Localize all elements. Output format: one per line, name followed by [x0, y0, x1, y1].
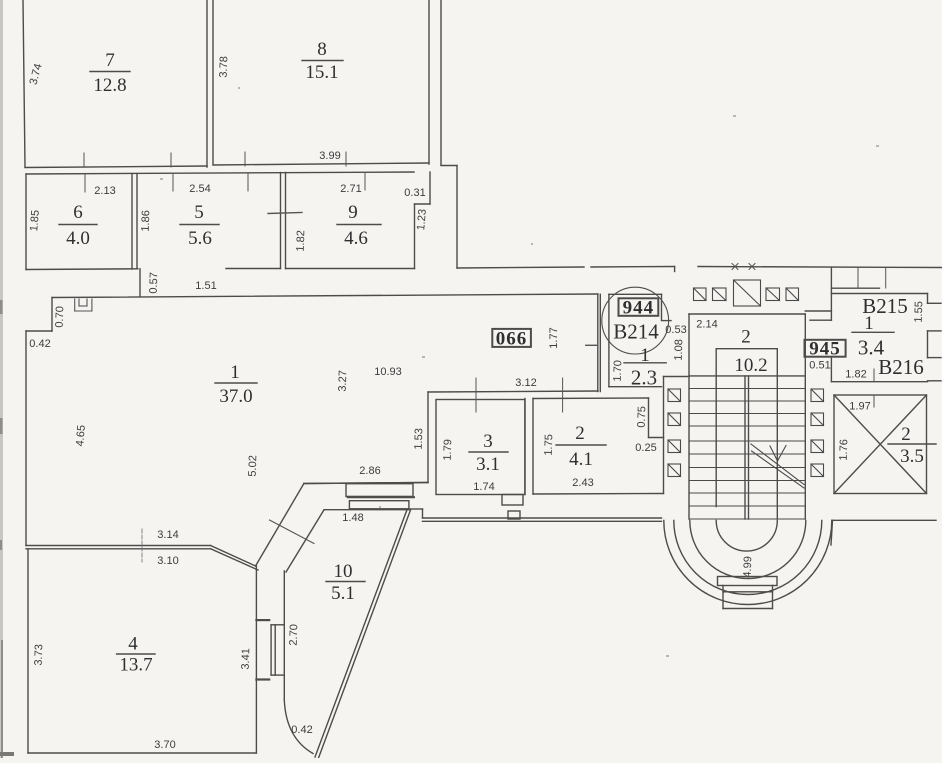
svg-text:1.77: 1.77	[548, 327, 560, 348]
svg-text:0.57: 0.57	[148, 272, 161, 294]
svg-text:12.8: 12.8	[93, 75, 126, 96]
svg-text:0.75: 0.75	[636, 406, 649, 428]
svg-text:3.10: 3.10	[157, 555, 178, 567]
svg-text:3.1: 3.1	[476, 454, 500, 475]
svg-text:0.25: 0.25	[635, 442, 656, 454]
svg-text:4.0: 4.0	[66, 228, 90, 249]
svg-text:1.79: 1.79	[442, 439, 455, 461]
svg-text:9: 9	[348, 202, 358, 223]
svg-text:2.86: 2.86	[359, 465, 380, 477]
svg-text:2: 2	[901, 424, 911, 445]
svg-text:2.3: 2.3	[631, 366, 657, 390]
svg-text:4: 4	[128, 634, 138, 655]
svg-text:3.99: 3.99	[319, 150, 340, 162]
svg-text:5.1: 5.1	[331, 583, 355, 604]
svg-text:0.70: 0.70	[54, 306, 67, 328]
svg-text:0.42: 0.42	[291, 724, 312, 736]
svg-text:3.5: 3.5	[900, 446, 924, 467]
svg-text:5.6: 5.6	[188, 228, 212, 249]
svg-text:1: 1	[864, 313, 874, 334]
svg-text:8: 8	[317, 39, 327, 60]
svg-text:13.7: 13.7	[119, 655, 152, 676]
svg-text:37.0: 37.0	[219, 386, 252, 407]
svg-text:1: 1	[230, 362, 240, 383]
svg-text:0.31: 0.31	[404, 187, 425, 199]
svg-text:3.73: 3.73	[33, 644, 46, 666]
svg-text:5.02: 5.02	[247, 455, 260, 477]
svg-text:2: 2	[741, 327, 751, 348]
svg-text:1.74: 1.74	[473, 481, 494, 493]
svg-text:3.70: 3.70	[154, 739, 175, 751]
svg-text:B214: B214	[613, 320, 659, 344]
svg-text:3: 3	[483, 431, 493, 452]
svg-text:4.1: 4.1	[569, 449, 593, 470]
svg-text:2: 2	[575, 423, 585, 444]
svg-text:10: 10	[334, 561, 353, 582]
svg-text:0.42: 0.42	[29, 338, 50, 350]
svg-text:1.76: 1.76	[838, 439, 851, 461]
svg-text:945: 945	[809, 339, 841, 360]
svg-text:1.23: 1.23	[415, 209, 429, 231]
svg-text:2.14: 2.14	[696, 319, 717, 331]
svg-text:0.51: 0.51	[809, 360, 830, 372]
svg-text:1.70: 1.70	[612, 360, 625, 382]
svg-text:15.1: 15.1	[305, 62, 338, 83]
svg-text:10.93: 10.93	[374, 366, 402, 378]
svg-text:10.2: 10.2	[734, 355, 767, 376]
svg-text:066: 066	[496, 329, 528, 350]
svg-text:5: 5	[194, 202, 204, 223]
svg-text:1.85: 1.85	[28, 210, 42, 232]
svg-text:3.27: 3.27	[337, 370, 350, 392]
svg-text:3.78: 3.78	[218, 56, 231, 78]
svg-text:4.99: 4.99	[742, 556, 755, 578]
svg-text:1.75: 1.75	[543, 434, 556, 456]
svg-text:0.53: 0.53	[665, 324, 686, 336]
svg-text:2.70: 2.70	[288, 624, 301, 646]
svg-text:1.51: 1.51	[195, 280, 216, 292]
svg-text:2.71: 2.71	[340, 183, 361, 195]
svg-text:944: 944	[623, 298, 655, 319]
svg-text:4.65: 4.65	[74, 425, 88, 447]
svg-text:1.48: 1.48	[342, 512, 363, 524]
svg-text:3.41: 3.41	[240, 648, 253, 670]
svg-text:1.82: 1.82	[845, 369, 866, 381]
svg-text:1.86: 1.86	[140, 210, 153, 232]
svg-text:1.97: 1.97	[849, 401, 870, 413]
svg-text:6: 6	[73, 202, 83, 223]
svg-text:1.55: 1.55	[913, 301, 926, 323]
svg-text:3.12: 3.12	[515, 377, 536, 389]
svg-text:1.08: 1.08	[673, 339, 686, 361]
svg-text:2.13: 2.13	[94, 185, 115, 197]
svg-text:7: 7	[105, 50, 115, 71]
svg-text:2.54: 2.54	[189, 183, 210, 195]
svg-text:1.82: 1.82	[295, 230, 308, 252]
svg-text:1.53: 1.53	[413, 428, 426, 450]
svg-text:3.74: 3.74	[28, 62, 45, 86]
svg-text:2.43: 2.43	[572, 477, 593, 489]
svg-text:3.14: 3.14	[157, 529, 178, 541]
svg-text:4.6: 4.6	[344, 228, 368, 249]
svg-text:B216: B216	[878, 355, 924, 379]
